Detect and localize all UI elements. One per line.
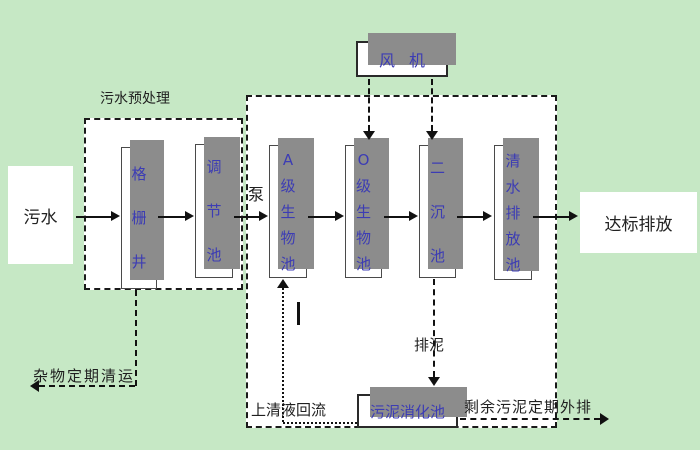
tank-clean-water: 清 水 排 放 池 bbox=[494, 145, 532, 280]
arrow-sludge-discharge bbox=[433, 279, 435, 377]
influent-box: 污水 bbox=[8, 166, 73, 264]
sludge-discharge-label: 排泥 bbox=[414, 334, 444, 355]
tank-a-bio-label: A 级 生 物 池 bbox=[270, 146, 306, 277]
pump-label: 泵 bbox=[248, 181, 264, 205]
tank-o-bio-label: O 级 生 物 池 bbox=[346, 146, 381, 277]
arrow-blower-to-obio bbox=[368, 79, 370, 131]
tank-a-bio: A 级 生 物 池 bbox=[269, 145, 307, 278]
arrow-obio-to-sedimentation bbox=[384, 216, 409, 218]
tank-clean-water-label: 清 水 排 放 池 bbox=[495, 146, 531, 279]
pretreatment-title: 污水预处理 bbox=[100, 88, 170, 108]
tank-regulating: 调 节 池 bbox=[195, 144, 233, 278]
discharge-box: 达标排放 bbox=[580, 192, 697, 253]
arrow-influent-to-gridwell bbox=[76, 216, 111, 218]
arrow-blower-to-sedimentation bbox=[431, 79, 433, 131]
aao-process-flow-diagram: 污水预处理 污水 风机 格 栅 井 调 节 池 A 级 生 物 池 O 级 生 … bbox=[0, 0, 700, 450]
tank-regulating-label: 调 节 池 bbox=[196, 145, 232, 277]
tank-grid-well: 格 栅 井 bbox=[121, 147, 157, 289]
debris-removal-label: 杂物定期清运 bbox=[33, 365, 135, 386]
arrow-gridwell-to-regulating bbox=[158, 216, 185, 218]
arrow-excess-sludge-out bbox=[460, 418, 600, 420]
blower-box: 风机 bbox=[356, 41, 448, 77]
blower-label: 风机 bbox=[358, 43, 446, 75]
influent-label: 污水 bbox=[24, 203, 58, 228]
arrow-sedimentation-to-cleanwater bbox=[457, 216, 483, 218]
arrow-regulating-to-abio bbox=[234, 216, 259, 218]
tank-secondary-sedimentation-label: 二 沉 池 bbox=[420, 146, 455, 277]
arrow-abio-to-obio bbox=[308, 216, 335, 218]
sludge-digestion-label: 污泥消化池 bbox=[359, 396, 456, 426]
debris-removal-line-vertical bbox=[135, 290, 137, 386]
excess-sludge-label: 剩余污泥定期外排 bbox=[464, 396, 592, 417]
valve-tick-mark bbox=[297, 302, 300, 325]
supernatant-return-line-horizontal bbox=[283, 422, 357, 424]
discharge-label: 达标排放 bbox=[605, 210, 673, 235]
tank-secondary-sedimentation: 二 沉 池 bbox=[419, 145, 456, 278]
tank-o-bio: O 级 生 物 池 bbox=[345, 145, 382, 278]
supernatant-return-label: 上清液回流 bbox=[251, 399, 326, 420]
arrow-cleanwater-to-discharge bbox=[533, 216, 569, 218]
sludge-digestion-tank: 污泥消化池 bbox=[357, 394, 458, 428]
tank-grid-well-label: 格 栅 井 bbox=[122, 148, 156, 288]
